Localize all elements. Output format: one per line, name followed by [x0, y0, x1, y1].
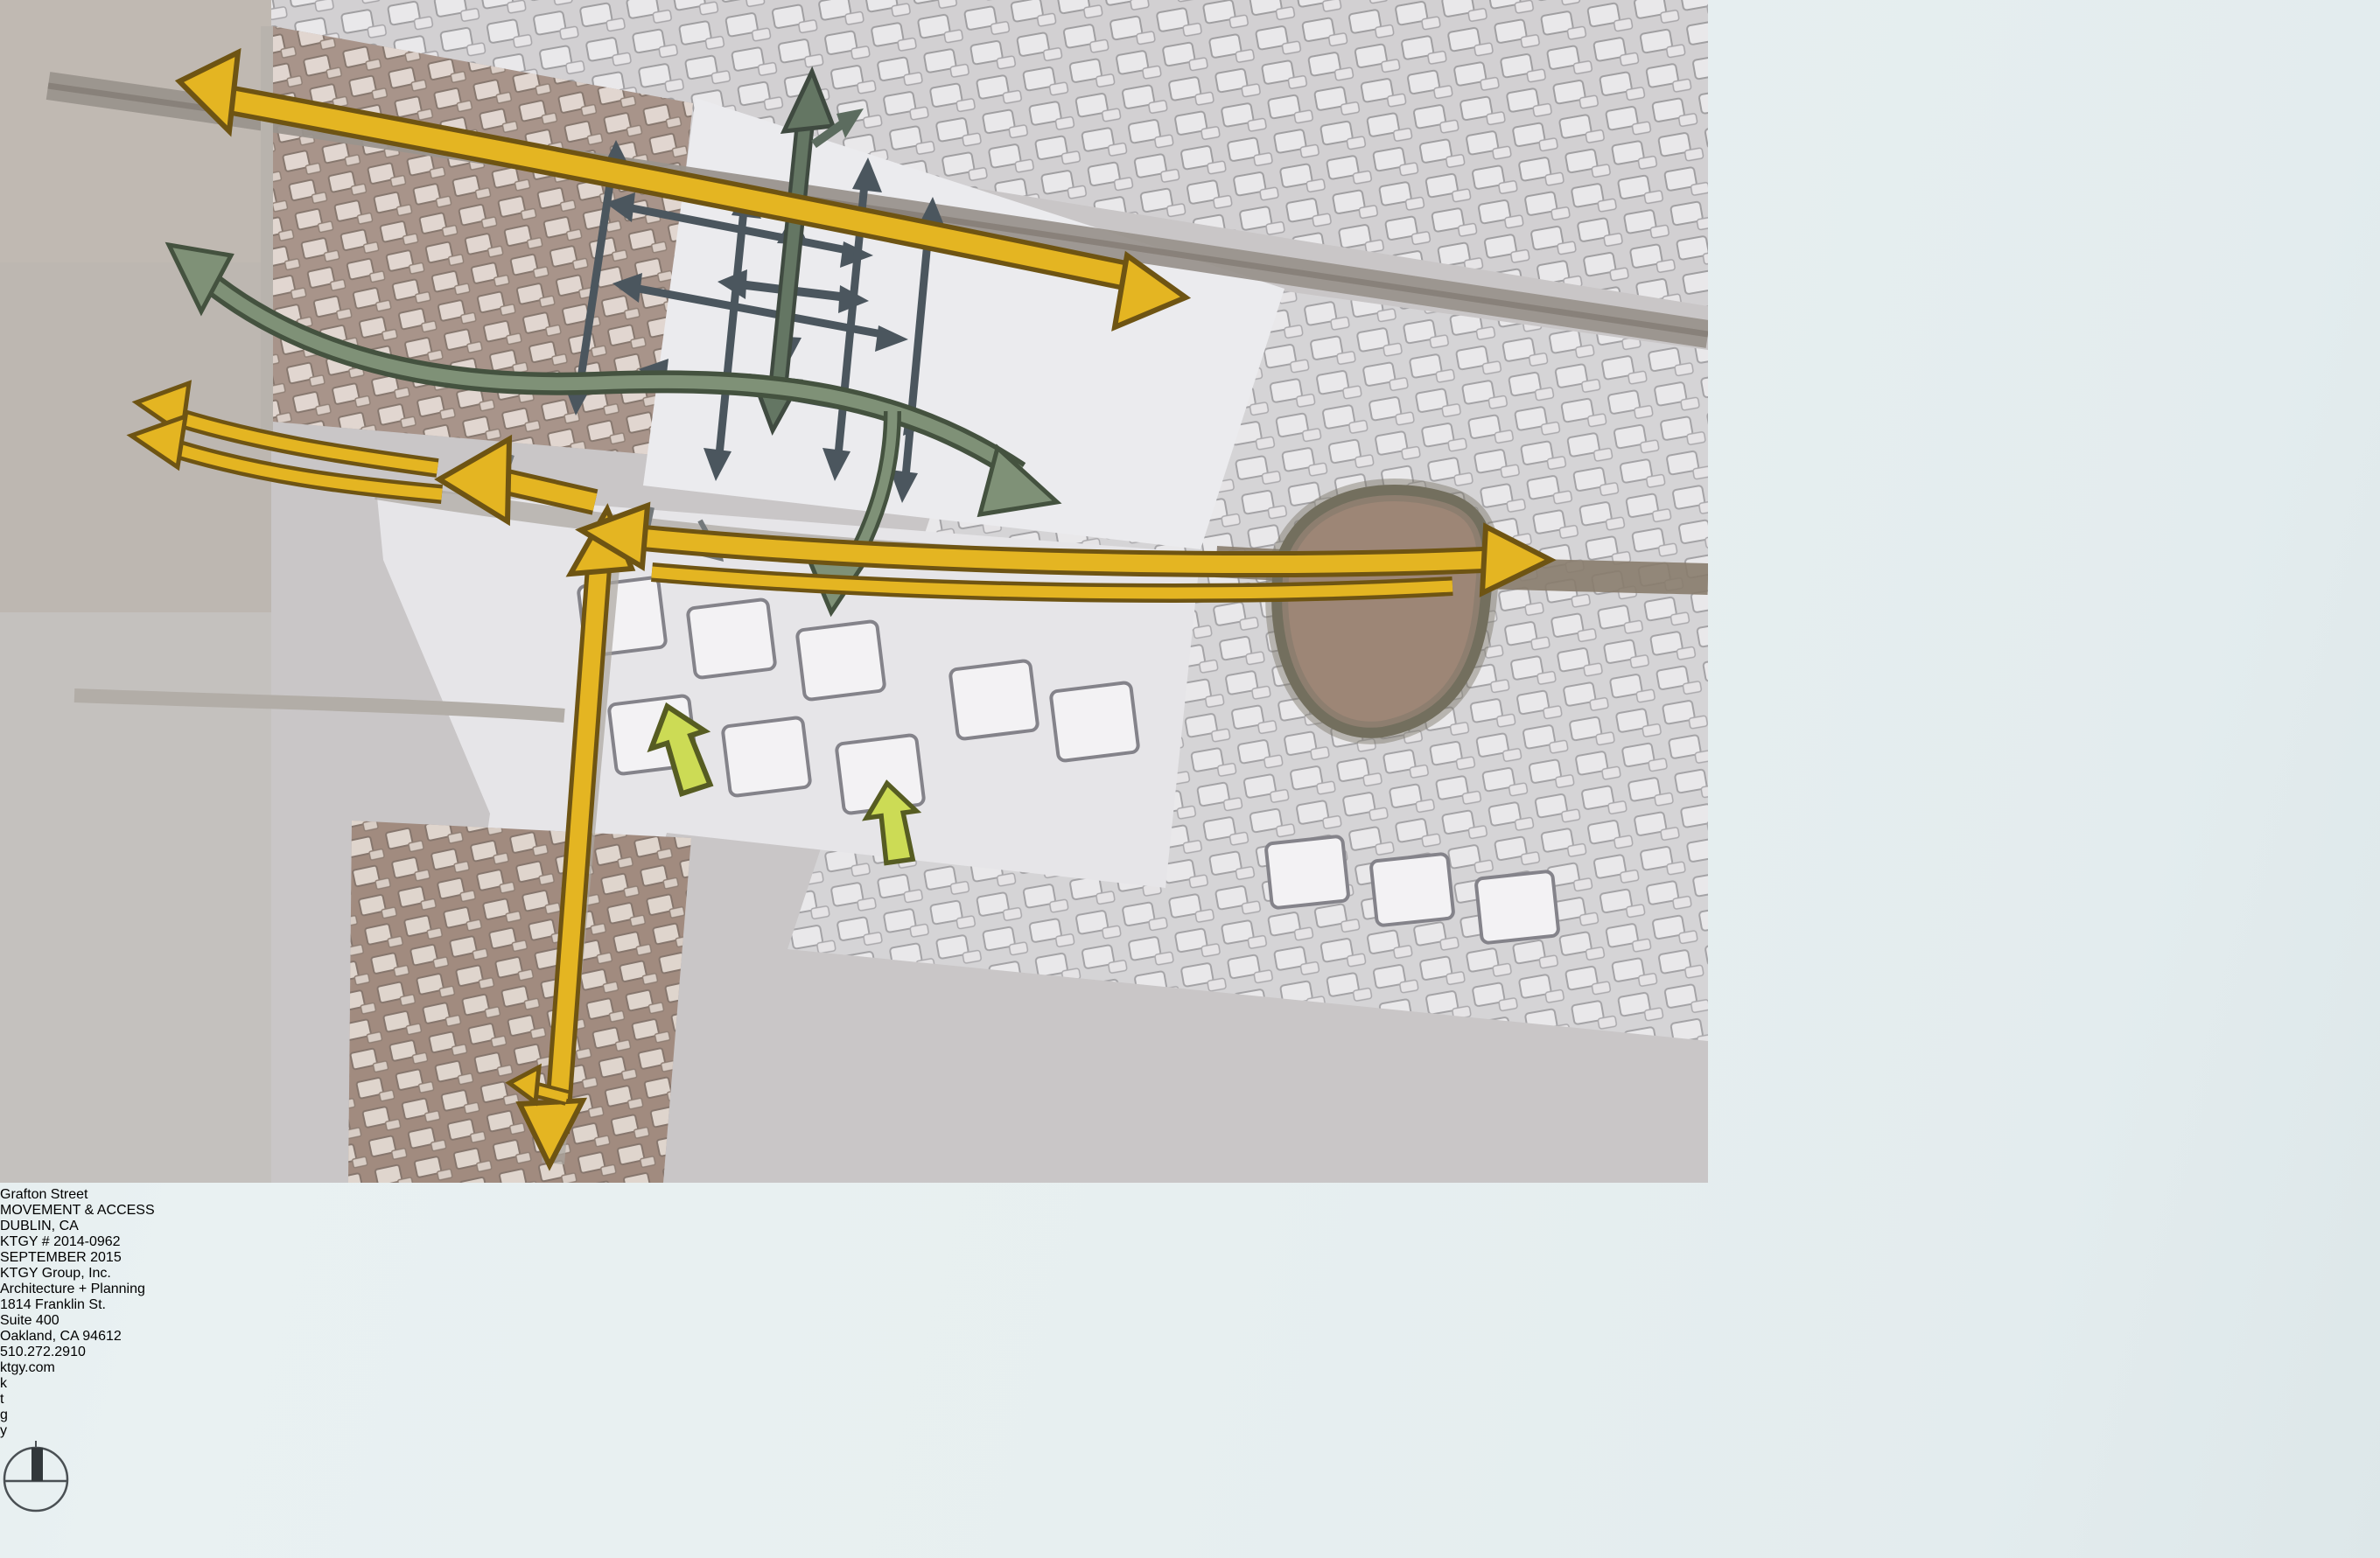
firm-line: 510.272.2910: [0, 1345, 2380, 1360]
logo-letter-y: y: [0, 1423, 2380, 1439]
firm-line: Suite 400: [0, 1313, 2380, 1329]
ktgy-logo: k t g y: [0, 1376, 2380, 1439]
firm-address-block: KTGY Group, Inc. Architecture + Planning…: [0, 1266, 2380, 1376]
firm-line: Architecture + Planning: [0, 1282, 2380, 1297]
slide-photo: Grafton Street MOVEMENT & ACCESS DUBLIN,…: [0, 0, 2380, 1558]
north-arrow-icon: [0, 1439, 2380, 1522]
logo-letter-t: t: [0, 1392, 2380, 1408]
logo-letter-g: g: [0, 1408, 2380, 1423]
firm-line: 1814 Franklin St.: [0, 1297, 2380, 1313]
firm-line: ktgy.com: [0, 1360, 2380, 1376]
logo-letter-k: k: [0, 1376, 2380, 1392]
project-number: KTGY # 2014-0962: [0, 1234, 2380, 1250]
pond: [1277, 490, 1488, 733]
sheet-date: SEPTEMBER 2015: [0, 1250, 2380, 1266]
sheet-title: MOVEMENT & ACCESS: [0, 1203, 2380, 1219]
site-plan-graphics: [0, 0, 1708, 1183]
firm-line: Oakland, CA 94612: [0, 1329, 2380, 1345]
site-plan-map: [0, 0, 2380, 1187]
project-location: DUBLIN, CA: [0, 1219, 2380, 1234]
firm-line: KTGY Group, Inc.: [0, 1266, 2380, 1282]
project-title: Grafton Street: [0, 1187, 2380, 1203]
